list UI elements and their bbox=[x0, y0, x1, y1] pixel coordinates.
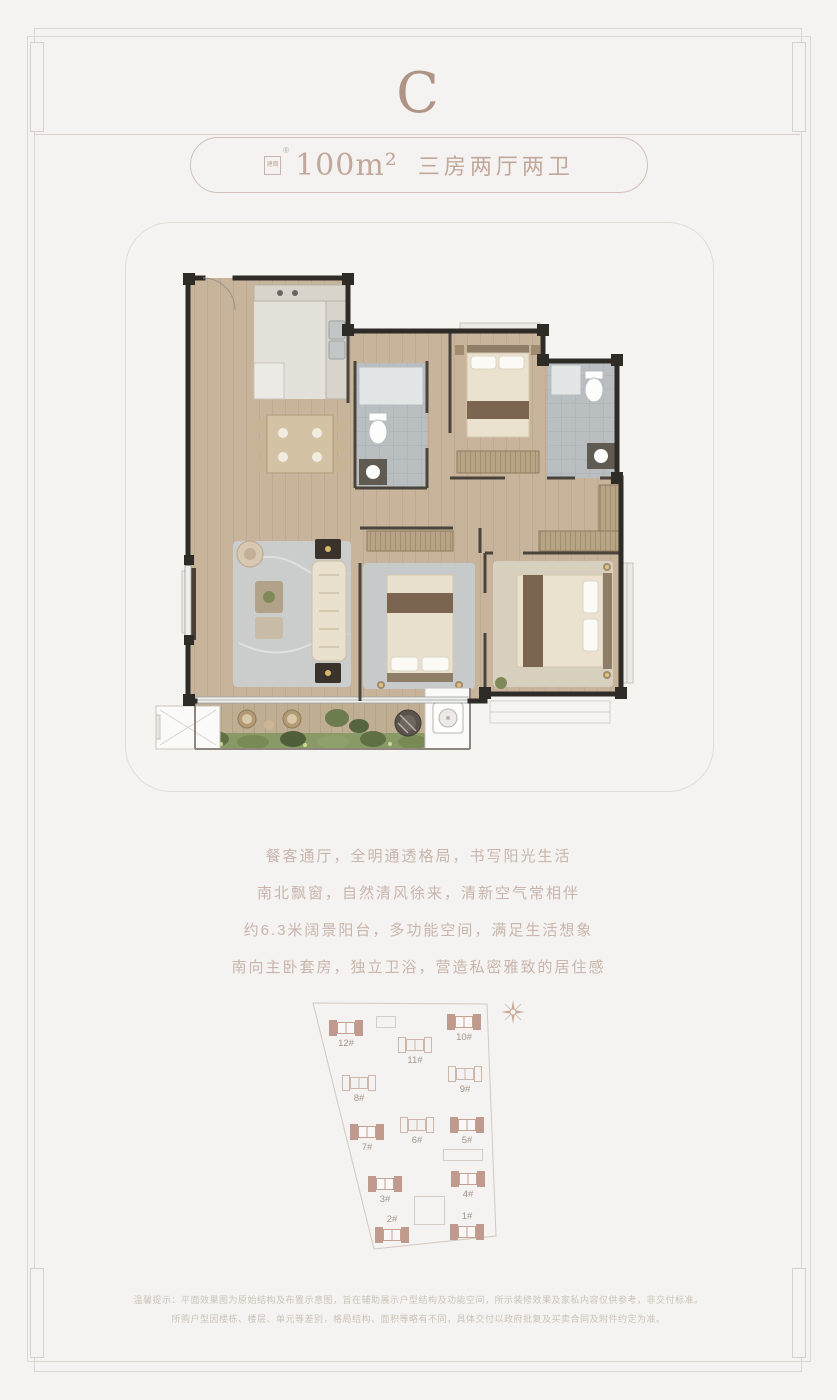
feature-line: 约6.3米阔景阳台，多功能空间，满足生活想象 bbox=[0, 912, 837, 949]
bedroom-1 bbox=[455, 345, 540, 473]
registered-trademark-icon: ® bbox=[283, 146, 289, 155]
unit-spec-pill: 建面 ® 100m² 三房两厅两卫 bbox=[190, 137, 648, 193]
frame-corner-ornament bbox=[792, 1268, 806, 1358]
site-building-6: 6# bbox=[400, 1117, 434, 1146]
building-footprint-icon bbox=[398, 1037, 432, 1053]
bathroom-1 bbox=[355, 363, 427, 488]
floorplan-card bbox=[125, 222, 714, 792]
site-amenity-block bbox=[443, 1149, 483, 1161]
frame-corner-ornament bbox=[30, 1268, 44, 1358]
disclaimer-line: 所购户型因楼栋、楼层、单元等差别，格局结构、面积等略有不同，具体交付以政府批复及… bbox=[110, 1310, 727, 1329]
feature-line: 南北飘窗，自然清风徐来，清新空气常相伴 bbox=[0, 875, 837, 912]
building-footprint-icon bbox=[447, 1014, 481, 1030]
unit-type-letter: C bbox=[0, 64, 837, 124]
site-building-12: 12# bbox=[329, 1020, 363, 1049]
site-building-1: 1# bbox=[450, 1211, 484, 1240]
building-footprint-icon bbox=[400, 1117, 434, 1133]
site-building-7: 7# bbox=[350, 1124, 384, 1153]
unit-layout-text: 三房两厅两卫 bbox=[418, 149, 574, 181]
header-divider bbox=[34, 134, 800, 135]
site-building-8: 8# bbox=[342, 1075, 376, 1104]
site-building-11: 11# bbox=[398, 1037, 432, 1066]
feature-line: 南向主卧套房，独立卫浴，营造私密雅致的居住感 bbox=[0, 949, 837, 986]
site-building-5: 5# bbox=[450, 1117, 484, 1146]
site-amenity-block bbox=[414, 1196, 445, 1225]
feature-line: 餐客通厅，全明通透格局，书写阳光生活 bbox=[0, 838, 837, 875]
utility-room bbox=[156, 706, 220, 749]
building-footprint-icon bbox=[342, 1075, 376, 1091]
page: C 建面 ® 100m² 三房两厅两卫 bbox=[0, 0, 837, 1400]
site-building-2: 2# bbox=[375, 1214, 409, 1243]
site-building-10: 10# bbox=[447, 1014, 481, 1043]
feature-copy: 餐客通厅，全明通透格局，书写阳光生活 南北飘窗，自然清风徐来，清新空气常相伴 约… bbox=[0, 838, 837, 986]
site-plan: 1# 2# 3# 4# 5# 6# 7# 8# bbox=[300, 995, 540, 1260]
master-bedroom bbox=[493, 561, 613, 689]
building-footprint-icon bbox=[375, 1227, 409, 1243]
site-building-9: 9# bbox=[448, 1066, 482, 1095]
unit-area-value: 100m² bbox=[295, 148, 398, 183]
building-footprint-icon bbox=[451, 1171, 485, 1187]
site-building-3: 3# bbox=[368, 1176, 402, 1205]
site-amenity-block bbox=[376, 1016, 396, 1028]
site-building-4: 4# bbox=[451, 1171, 485, 1200]
building-area-badge: 建面 bbox=[264, 156, 281, 175]
compass-rose-icon bbox=[500, 999, 526, 1025]
building-footprint-icon bbox=[350, 1124, 384, 1140]
bedroom-2 bbox=[363, 563, 475, 689]
bathroom-2 bbox=[547, 361, 617, 478]
building-footprint-icon bbox=[368, 1176, 402, 1192]
disclaimer-line: 温馨提示：平面效果图为原始结构及布置示意图，旨在辅助展示户型结构及功能空间，所示… bbox=[110, 1291, 727, 1310]
kitchen bbox=[254, 285, 348, 399]
building-footprint-icon bbox=[329, 1020, 363, 1036]
floorplan-drawing bbox=[155, 263, 685, 753]
disclaimer: 温馨提示：平面效果图为原始结构及布置示意图，旨在辅助展示户型结构及功能空间，所示… bbox=[110, 1291, 727, 1329]
building-footprint-icon bbox=[450, 1224, 484, 1240]
building-footprint-icon bbox=[448, 1066, 482, 1082]
building-footprint-icon bbox=[450, 1117, 484, 1133]
